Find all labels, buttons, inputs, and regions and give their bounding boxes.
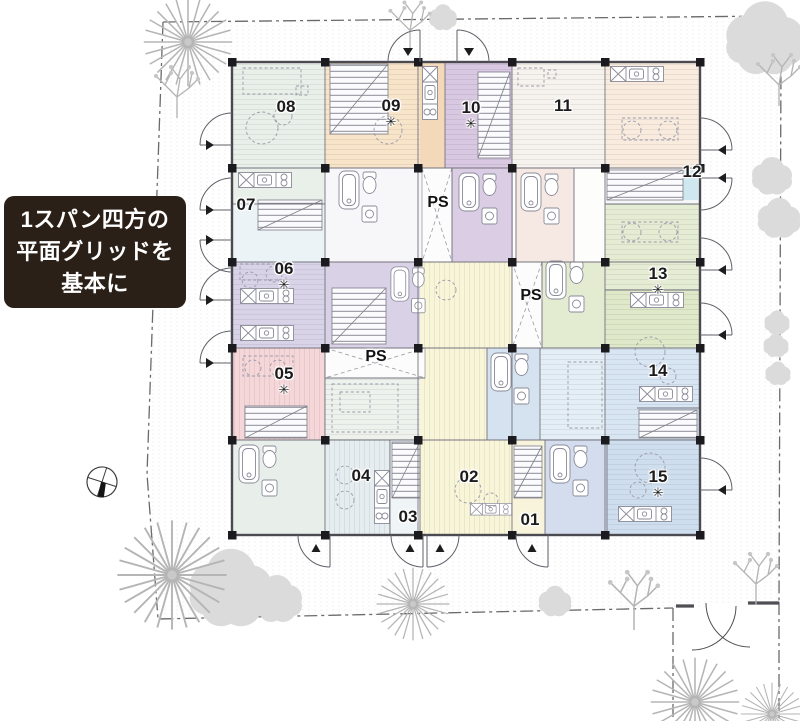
site-plan: 01 02 03 04 05✳ 06✳ 07 08 09✳ 10✳ 11 12 … — [0, 0, 800, 721]
north-arrow-compass — [83, 463, 121, 501]
callout-line-2: 平面グリッドを — [16, 236, 174, 268]
callout-line-1: 1スパン四方の — [21, 204, 170, 236]
callout-grid-note: 1スパン四方の 平面グリッドを 基本に — [4, 196, 186, 308]
entrance-gate — [676, 603, 779, 650]
building-rooms — [232, 62, 700, 535]
callout-line-3: 基本に — [61, 268, 129, 300]
floor-plan-drawing — [0, 0, 800, 721]
